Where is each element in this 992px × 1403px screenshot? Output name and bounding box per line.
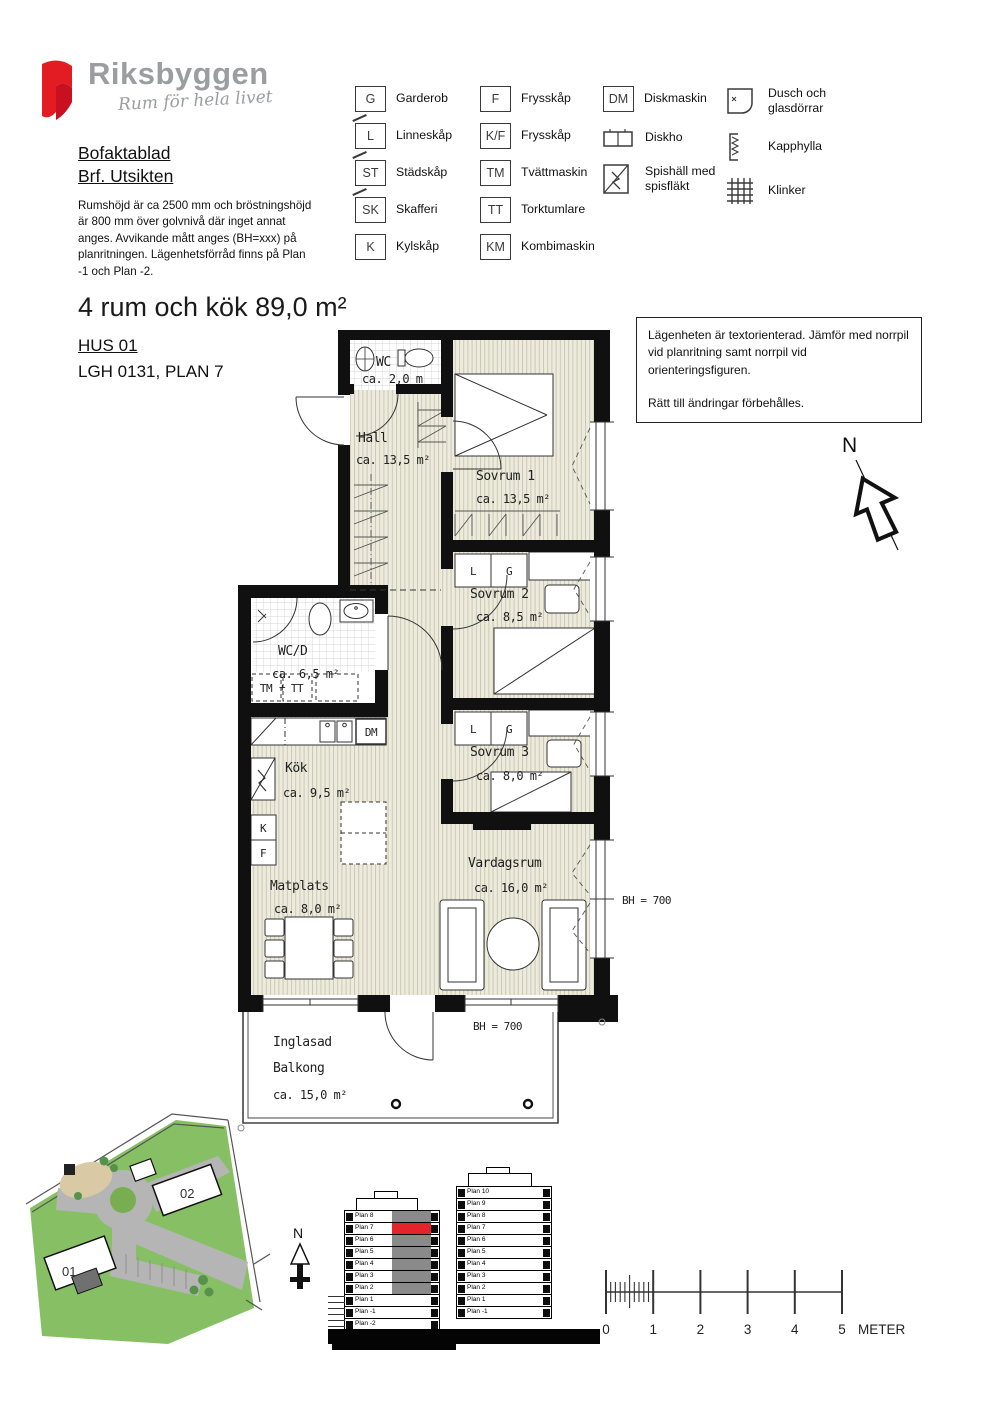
symbol-L: L: [355, 123, 386, 149]
room-sovrum2: Sovrum 2: [470, 587, 529, 602]
svg-text:+: +: [279, 681, 286, 694]
floor-label: Plan 4: [465, 1261, 504, 1268]
room-wc: WC: [376, 355, 391, 370]
legend-item: K/F Frysskåp: [480, 123, 595, 149]
cabinet-G: G: [506, 723, 512, 736]
room-balkong: Inglasad: [273, 1035, 332, 1050]
floor-label: Plan 3: [353, 1273, 392, 1280]
floor-label: Plan 9: [465, 1201, 504, 1208]
playground-structure: [64, 1164, 75, 1175]
house-number: HUS 01: [78, 336, 138, 356]
svg-text:ca. 13,5 m²: ca. 13,5 m²: [356, 453, 430, 467]
floor-label: Plan 8: [465, 1213, 504, 1220]
room-hall: Hall: [358, 431, 387, 446]
svg-text:ca. 8,5 m²: ca. 8,5 m²: [476, 610, 543, 624]
doc-title-line1: Bofaktablad: [78, 142, 173, 165]
symbol-DM: DM: [603, 86, 634, 112]
floor-label: Plan 2: [353, 1285, 392, 1292]
elevation-hus-02: Plan 10Plan 9Plan 8Plan 7Plan 6Plan 5Pla…: [456, 1187, 552, 1319]
legend-item: KM Kombimaskin: [480, 234, 595, 260]
symbol-F: F: [480, 86, 511, 112]
floor-label: Plan 2: [465, 1285, 504, 1292]
symbol-K: K: [355, 234, 386, 260]
cabinet-F: F: [260, 847, 266, 860]
building-02-label: 02: [180, 1186, 194, 1201]
stove-icon: [603, 164, 629, 194]
legend-column-3: DM Diskmaskin Diskho Spishäll med spisfl…: [603, 86, 715, 206]
legend-item: K Kylskåp: [355, 234, 452, 260]
floor-label: Plan 5: [353, 1249, 392, 1256]
brand-name: Riksbyggen: [88, 58, 273, 89]
floor-label: Plan 4: [353, 1261, 392, 1268]
site-plan: 02 01 N: [18, 1104, 318, 1400]
bh-label-balcony: BH = 700: [473, 1020, 522, 1033]
floor-label: Plan 6: [465, 1237, 504, 1244]
building-01-label: 01: [62, 1264, 76, 1279]
scale-bar: 0 1 2 3 4 5 METER: [594, 1258, 974, 1343]
svg-text:N: N: [293, 1225, 303, 1241]
scale-tick-3: 3: [744, 1322, 752, 1337]
scale-tick-5: 5: [838, 1322, 846, 1337]
symbol-SK: SK: [355, 197, 386, 223]
elevation-floor: Plan -1: [456, 1306, 552, 1319]
coat-rack-icon: [726, 132, 748, 162]
legend-item: G Garderob: [355, 86, 452, 112]
notice-paragraph-2: Rätt till ändringar förbehålles.: [648, 395, 910, 412]
svg-text:ca. 16,0 m²: ca. 16,0 m²: [474, 881, 548, 895]
bh-label-livingroom: BH = 700: [622, 894, 671, 907]
symbol-TT: TT: [480, 197, 511, 223]
floor-label: Plan 8: [353, 1213, 392, 1220]
cabinet-L: L: [470, 565, 477, 578]
legend-item: Klinker: [726, 177, 826, 205]
legend-item: Diskho: [603, 126, 715, 150]
svg-text:ca. 2,0 m: ca. 2,0 m: [362, 372, 423, 386]
scale-tick-2: 2: [697, 1322, 705, 1337]
floor-label: Plan -2: [353, 1321, 392, 1328]
legend-item: Dusch och glasdörrar: [726, 86, 826, 117]
room-wcd: WC/D: [278, 644, 308, 659]
elevation-hus-01: Plan 8Plan 7Plan 6Plan 5Plan 4Plan 3Plan…: [344, 1211, 440, 1331]
scale-tick-1: 1: [649, 1322, 657, 1337]
symbol-G: G: [355, 86, 386, 112]
svg-text:ca. 8,0 m²: ca. 8,0 m²: [476, 769, 543, 783]
legend-column-2: F Frysskåp K/F Frysskåp TM Tvättmaskin T…: [480, 86, 595, 271]
riksbyggen-logo: Riksbyggen Rum för hela livet: [36, 58, 273, 136]
floor-label: Plan 7: [465, 1225, 504, 1232]
cabinet-L: L: [470, 723, 477, 736]
room-sovrum3: Sovrum 3: [470, 745, 529, 760]
svg-text:ca. 13,5 m²: ca. 13,5 m²: [476, 492, 550, 506]
legend-item: Kapphylla: [726, 132, 826, 162]
floor-label: Plan 3: [465, 1273, 504, 1280]
legend-item: F Frysskåp: [480, 86, 595, 112]
sink-icon: [603, 128, 633, 148]
brand-tagline: Rum för hela livet: [118, 87, 274, 115]
apartment-number: LGH 0131, PLAN 7: [78, 362, 224, 382]
floor-plan: WC ca. 2,0 m Hall ca. 13,5 m² Sovrum 1 c…: [228, 322, 678, 1137]
tile-grid-icon: [726, 177, 754, 205]
dryer-label: TT: [291, 682, 304, 695]
general-notes: Rumshöjd är ca 2500 mm och bröstningshöj…: [78, 198, 318, 280]
floor-label: Plan 1: [465, 1297, 504, 1304]
legend-item: Spishäll med spisfläkt: [603, 164, 715, 195]
legend-item: L Linneskåp: [355, 123, 452, 149]
scale-unit: METER: [858, 1322, 906, 1337]
floor-label: Plan -1: [353, 1309, 392, 1316]
room-kok: Kök: [285, 761, 308, 776]
notice-box: Lägenheten är textorienterad. Jämför med…: [636, 317, 922, 423]
scale-tick-4: 4: [791, 1322, 799, 1337]
cabinet-K: K: [260, 822, 267, 835]
symbol-KF: K/F: [480, 123, 511, 149]
document-title: Bofaktablad Brf. Utsikten: [78, 142, 173, 188]
roundabout-center: [110, 1187, 136, 1213]
floor-label: Plan 10: [465, 1189, 504, 1196]
floor-label: Plan 5: [465, 1249, 504, 1256]
doc-title-line2: Brf. Utsikten: [78, 165, 173, 188]
floor-label: Plan -1: [465, 1309, 504, 1316]
legend-column-1: G Garderob L Linneskåp ST Städskåp SK Sk…: [355, 86, 452, 271]
north-arrow: N: [830, 424, 922, 559]
symbol-KM: KM: [480, 234, 511, 260]
svg-text:Balkong: Balkong: [273, 1061, 324, 1076]
legend-column-4: Dusch och glasdörrar Kapphylla Klinker: [726, 86, 826, 216]
room-sovrum1: Sovrum 1: [476, 469, 535, 484]
legend-item: DM Diskmaskin: [603, 86, 715, 112]
svg-text:ca. 15,0 m²: ca. 15,0 m²: [273, 1088, 347, 1102]
scale-tick-0: 0: [602, 1322, 610, 1337]
cabinet-G: G: [506, 565, 512, 578]
floor-label: Plan 7: [353, 1225, 392, 1232]
site-north-arrow: N: [290, 1225, 310, 1289]
shower-icon: [726, 87, 754, 115]
notice-paragraph-1: Lägenheten är textorienterad. Jämför med…: [648, 327, 910, 379]
legend-item: SK Skafferi: [355, 197, 452, 223]
apartment-title: 4 rum och kök 89,0 m²: [78, 292, 347, 323]
riksbyggen-logo-icon: [36, 58, 88, 136]
bofaktablad-page: Riksbyggen Rum för hela livet Bofaktabla…: [0, 0, 992, 1403]
floor-label: Plan 6: [353, 1237, 392, 1244]
symbol-ST: ST: [355, 160, 386, 186]
building-elevations: Plan 8Plan 7Plan 6Plan 5Plan 4Plan 3Plan…: [328, 1166, 600, 1371]
legend-item: TM Tvättmaskin: [480, 160, 595, 186]
svg-text:ca. 8,0 m²: ca. 8,0 m²: [274, 902, 341, 916]
room-vardagsrum: Vardagsrum: [468, 856, 542, 871]
svg-text:ca. 6,5 m²: ca. 6,5 m²: [272, 667, 339, 681]
symbol-TM: TM: [480, 160, 511, 186]
legend-item: TT Torktumlare: [480, 197, 595, 223]
room-matplats: Matplats: [270, 879, 329, 894]
legend-item: ST Städskåp: [355, 160, 452, 186]
washer-label: TM: [260, 682, 273, 695]
north-label: N: [842, 434, 857, 457]
svg-text:ca. 9,5 m²: ca. 9,5 m²: [283, 786, 350, 800]
terrace-stripes: [328, 1296, 345, 1332]
dishwasher-label: DM: [365, 726, 378, 739]
floor-label: Plan 1: [353, 1297, 392, 1304]
